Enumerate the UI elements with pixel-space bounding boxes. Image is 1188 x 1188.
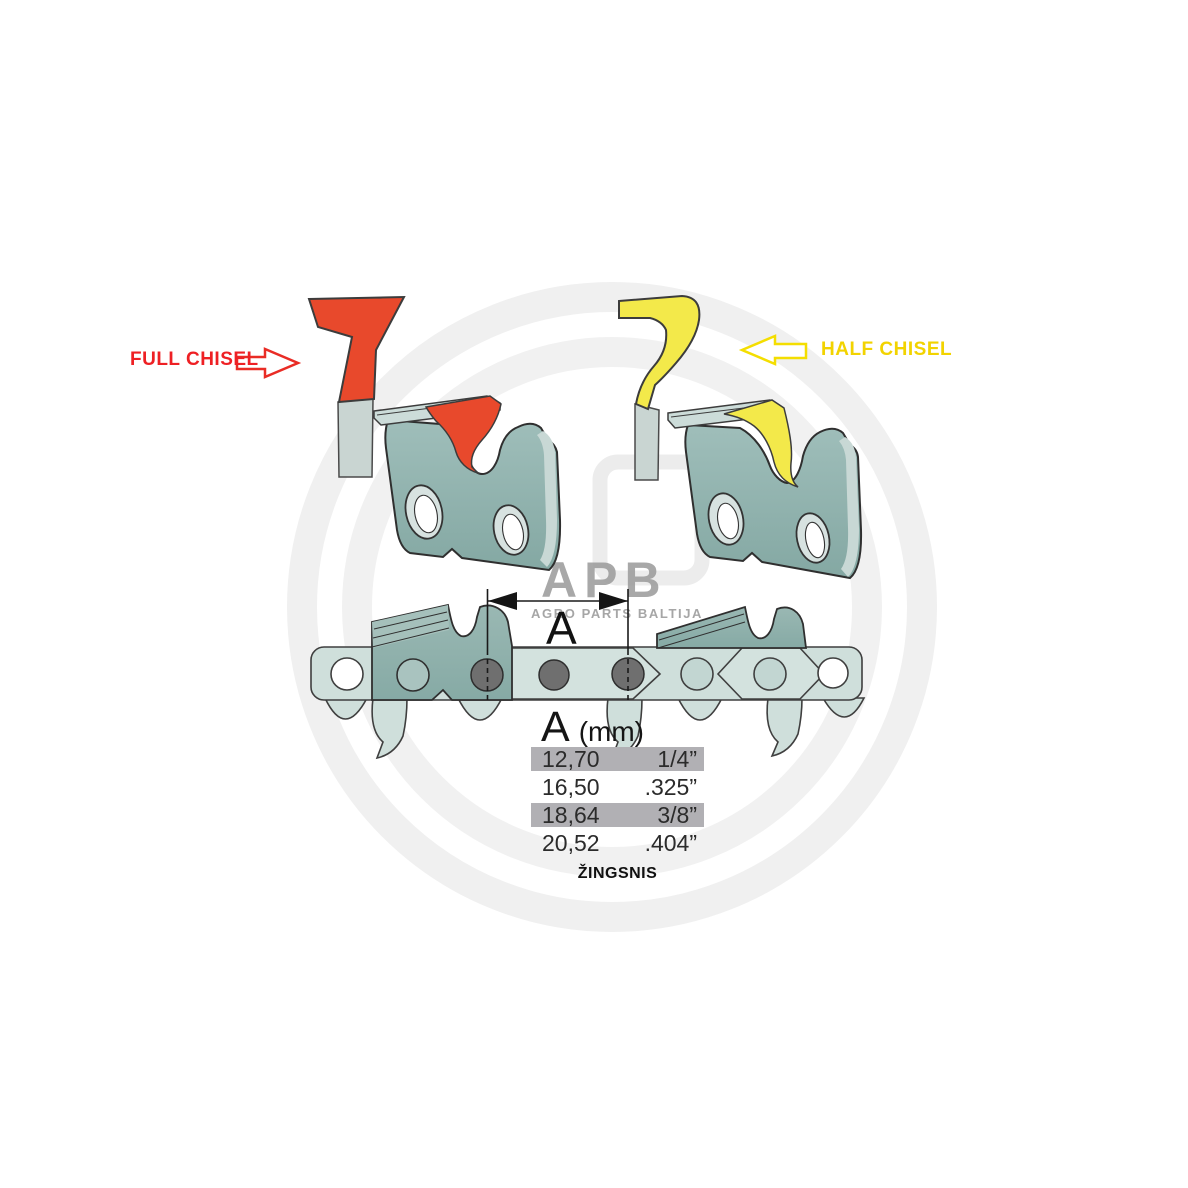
half-chisel-shank bbox=[635, 404, 659, 480]
pitch-mm-value: 12,70 bbox=[542, 746, 600, 773]
pitch-table-caption: ŽINGSNIS bbox=[531, 865, 704, 883]
half-chisel-profile-shape bbox=[619, 296, 699, 409]
pitch-table: 12,70 1/4” 16,50 .325” 18,64 3/8” 20,52 … bbox=[531, 747, 704, 859]
chain-rivet-light-2 bbox=[681, 658, 713, 690]
chain-hole-left bbox=[331, 658, 363, 690]
chain-hole-right bbox=[818, 658, 848, 688]
chain-illustration bbox=[0, 0, 1188, 1188]
product-diagram-canvas: APB AGRO PARTS BALTIJA bbox=[0, 0, 1188, 1188]
pitch-table-row: 20,52 .404” bbox=[531, 831, 704, 855]
pitch-inch-value: .325” bbox=[645, 774, 697, 801]
pitch-table-row: 16,50 .325” bbox=[531, 775, 704, 799]
pitch-table-row: 18,64 3/8” bbox=[531, 803, 704, 827]
full-chisel-profile-shape bbox=[309, 297, 404, 402]
chain-rivet-light-1 bbox=[397, 659, 429, 691]
pitch-inch-value: 1/4” bbox=[657, 746, 697, 773]
pitch-table-row: 12,70 1/4” bbox=[531, 747, 704, 771]
chain-rivet-dark-2 bbox=[539, 660, 569, 690]
pitch-table-header-unit: (mm) bbox=[579, 716, 644, 748]
pitch-mm-value: 16,50 bbox=[542, 774, 600, 801]
pitch-mm-value: 18,64 bbox=[542, 802, 600, 829]
half-chisel-arrow-icon bbox=[742, 336, 806, 364]
pitch-inch-value: 3/8” bbox=[657, 802, 697, 829]
pitch-inch-value: .404” bbox=[645, 830, 697, 857]
pitch-mm-value: 20,52 bbox=[542, 830, 600, 857]
chain-rivet-light-3 bbox=[754, 658, 786, 690]
half-chisel-label: HALF CHISEL bbox=[821, 339, 952, 361]
pitch-dimension-letter: A bbox=[546, 601, 577, 655]
full-chisel-label: FULL CHISEL bbox=[130, 349, 259, 371]
full-chisel-shank bbox=[338, 399, 373, 477]
dimension-arrow-right bbox=[599, 592, 628, 610]
full-chisel-figure bbox=[237, 297, 560, 570]
